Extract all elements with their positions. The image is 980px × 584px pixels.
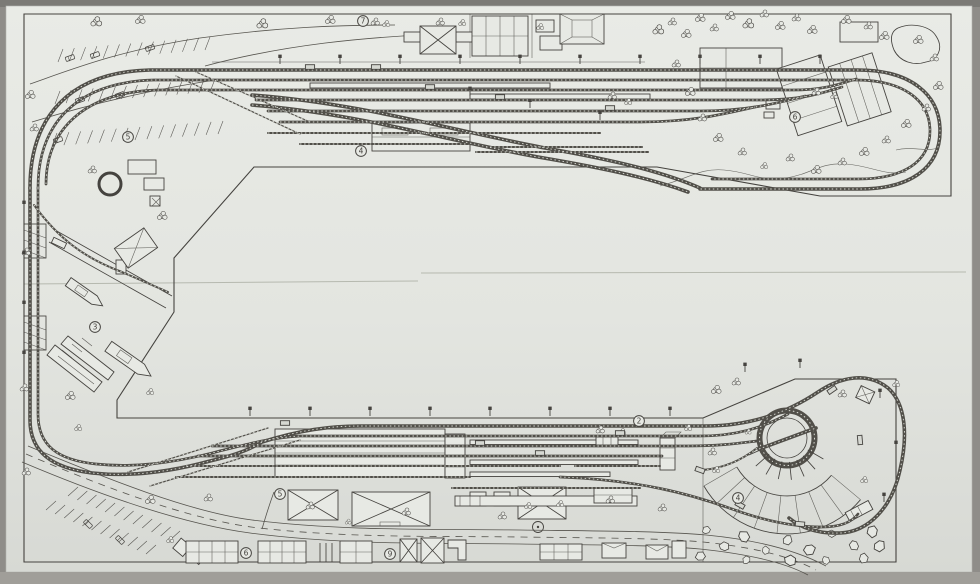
svg-text:4: 4 — [736, 494, 741, 503]
wagon-icon — [605, 106, 614, 111]
wagon-icon — [425, 85, 434, 90]
svg-text:4: 4 — [359, 147, 364, 156]
svg-text:9: 9 — [388, 550, 393, 559]
svg-text:2: 2 — [637, 417, 642, 426]
plan-marker-3: 3 — [90, 322, 101, 333]
plan-marker-5: 5 — [275, 489, 286, 500]
svg-text:5: 5 — [278, 490, 283, 499]
svg-text:6: 6 — [793, 113, 798, 122]
wagon-icon — [857, 435, 862, 445]
plan-marker-6: 6 — [241, 548, 252, 559]
track-plan-photo: 5746325469 — [0, 0, 980, 584]
wagon-icon — [795, 521, 805, 526]
plan-marker-5: 5 — [123, 132, 134, 143]
wagon-icon — [305, 65, 314, 70]
svg-text:3: 3 — [93, 323, 98, 332]
wagon-icon — [475, 441, 484, 446]
plan-canvas: 5746325469 — [0, 0, 980, 584]
wagon-icon — [535, 451, 544, 456]
plan-marker-2: 2 — [634, 416, 645, 427]
svg-text:7: 7 — [361, 17, 366, 26]
wagon-icon — [615, 431, 624, 436]
photo-edge-bottom — [0, 572, 980, 584]
wagon-icon — [280, 421, 289, 426]
wagon-icon — [371, 65, 380, 70]
plan-marker-6: 6 — [790, 112, 801, 123]
svg-text:5: 5 — [126, 133, 131, 142]
plan-marker-4: 4 — [733, 493, 744, 504]
plan-marker-7: 7 — [358, 16, 369, 27]
wagon-icon — [495, 95, 504, 100]
plan-marker-9: 9 — [385, 549, 396, 560]
plan-marker-4: 4 — [356, 146, 367, 157]
svg-text:6: 6 — [244, 549, 249, 558]
